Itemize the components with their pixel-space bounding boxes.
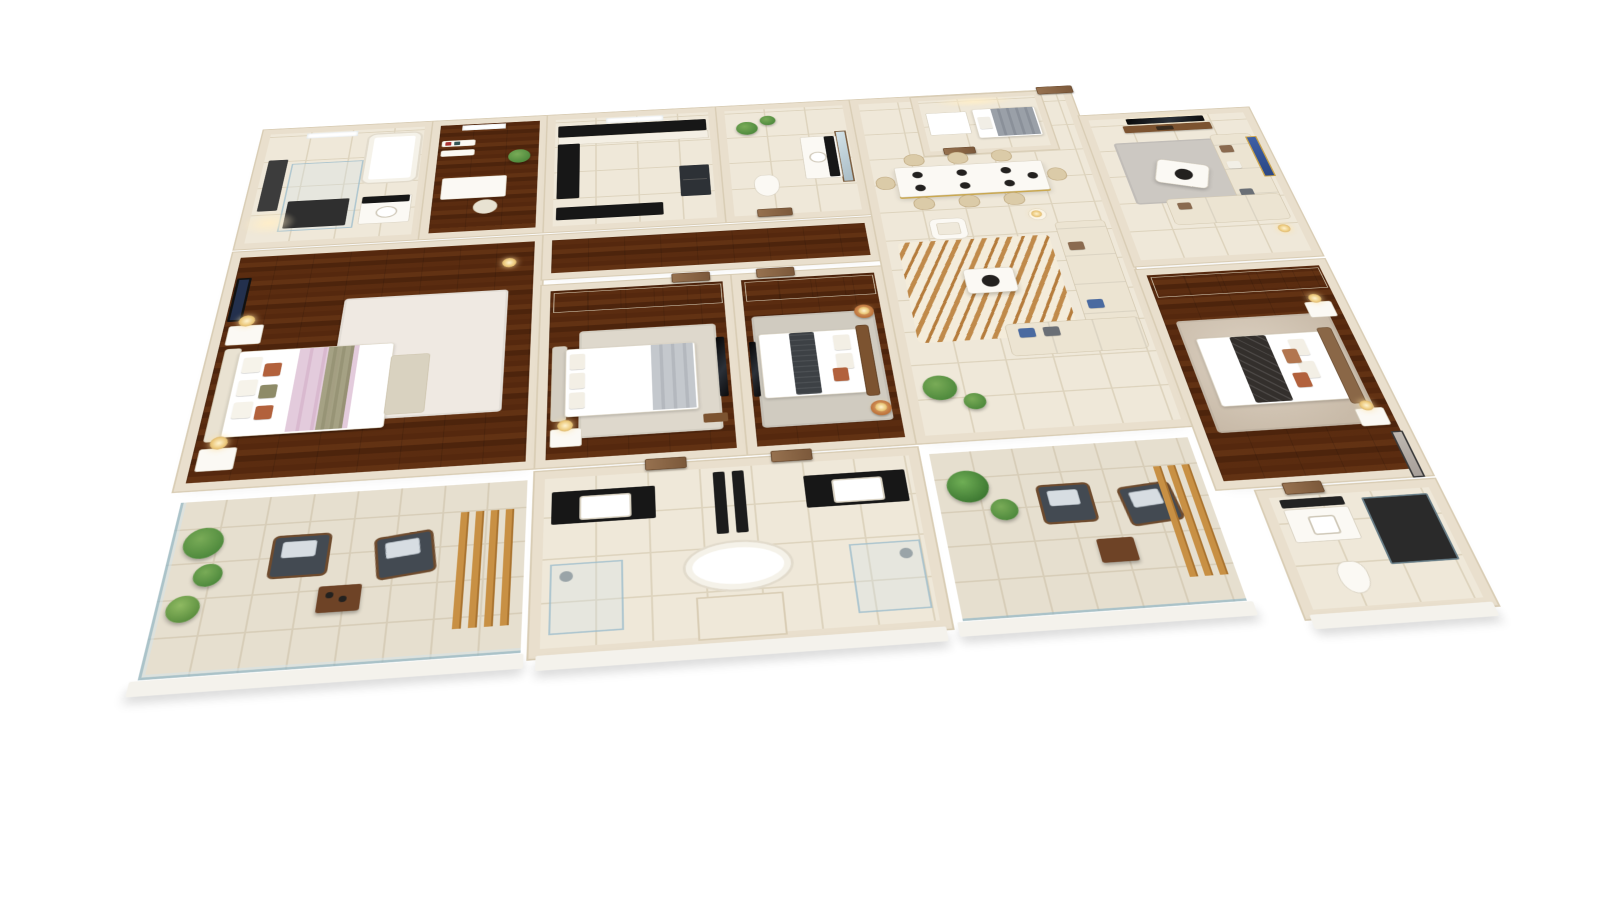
bathroom-door: [645, 456, 687, 470]
bathtub: [360, 131, 424, 185]
bathroom-door: [770, 448, 812, 462]
nightstand: [224, 324, 264, 345]
accent-pillow: [832, 367, 849, 381]
pillow: [832, 334, 851, 350]
chair-cushion: [385, 537, 421, 559]
side-table: [315, 584, 362, 614]
bed: [564, 342, 699, 418]
pillow: [241, 357, 263, 374]
gray-art: [1390, 430, 1425, 477]
vanity: [800, 135, 844, 179]
ensuite-bathroom: [1269, 487, 1484, 609]
potted-plant: [190, 563, 224, 588]
gray-pillow: [1042, 326, 1061, 336]
nightstand: [194, 447, 238, 472]
place-setting: [915, 184, 927, 191]
toilet: [1333, 560, 1377, 594]
single-bed: [971, 106, 1044, 138]
dining-chair: [957, 194, 981, 208]
potted-plant: [508, 149, 531, 164]
toilet: [753, 174, 781, 197]
utility-room: [918, 95, 1051, 151]
pillow: [569, 373, 585, 390]
powder-room-door: [757, 207, 793, 217]
dining-chair: [912, 197, 936, 211]
glass-shower: [277, 160, 364, 232]
apartment-3d-floor-plan: [99, 73, 1527, 745]
dining-chair: [902, 154, 925, 167]
sliding-wardrobe: [1150, 267, 1328, 297]
dark-shower: [1361, 493, 1460, 564]
entrance-main-door: [1035, 85, 1073, 94]
potted-plant: [179, 527, 226, 561]
coffee-table: [962, 267, 1019, 294]
shower-head: [899, 547, 914, 558]
blue-pillow: [1018, 328, 1037, 338]
pillow: [570, 354, 585, 370]
side-table: [1096, 537, 1140, 563]
accent-pillow: [1067, 241, 1085, 250]
nightstand: [1304, 301, 1339, 318]
shower-tray: [282, 198, 350, 228]
floor-plant: [920, 375, 959, 402]
hallway: [551, 223, 870, 273]
pillow: [236, 379, 259, 396]
vanity: [1283, 506, 1363, 544]
armchair-cushion: [936, 222, 962, 235]
basin: [375, 206, 398, 219]
floor-plant: [962, 392, 988, 410]
basin: [579, 493, 631, 520]
decor-tray: [1174, 168, 1193, 181]
desk: [440, 175, 507, 200]
pillow: [977, 117, 993, 130]
desk-chair: [472, 199, 498, 215]
divider-panel: [713, 472, 730, 535]
shower-head: [559, 571, 573, 583]
quilted-runner: [1229, 335, 1293, 403]
powder-room: [724, 105, 862, 216]
place-setting: [1004, 180, 1016, 187]
basin: [1307, 515, 1342, 536]
vanity-counter-right: [803, 469, 910, 508]
potted-plant: [759, 115, 776, 125]
books: [445, 142, 451, 146]
wall-shelf: [441, 139, 475, 147]
skylight: [462, 123, 506, 130]
pillow: [231, 401, 254, 419]
place-setting: [1000, 167, 1012, 174]
wardrobe: [744, 275, 876, 302]
kitchen: [553, 112, 717, 226]
dining-chair: [1002, 192, 1027, 205]
cup: [325, 592, 334, 599]
dining-chair: [989, 149, 1013, 162]
peninsula-counter: [556, 202, 664, 220]
bedroom-3: [741, 273, 905, 447]
divider-panel: [732, 470, 749, 532]
place-setting: [956, 169, 968, 176]
console-niche: [1156, 125, 1175, 130]
place-setting: [959, 182, 971, 189]
master-bathroom: [244, 127, 425, 244]
bedroom-2-door: [671, 271, 710, 282]
pillow: [1226, 161, 1242, 169]
armchair: [928, 217, 970, 240]
accent-pillow: [262, 363, 282, 377]
basin: [808, 151, 827, 163]
ensuite-door: [1281, 480, 1325, 494]
living-room: [1088, 112, 1311, 260]
vanity: [357, 194, 412, 225]
tv-console: [703, 412, 728, 422]
potted-plant: [735, 121, 758, 135]
balcony-1: [138, 480, 528, 680]
table-lamp: [1276, 224, 1292, 233]
accent-pillow: [253, 405, 274, 420]
accent-pillow: [258, 384, 278, 399]
potted-plant: [162, 595, 202, 624]
chair-cushion: [1046, 489, 1081, 506]
glass-shower: [849, 539, 933, 613]
bed: [758, 329, 868, 399]
wardrobe: [553, 284, 723, 313]
master-bedroom: [186, 241, 535, 483]
charcoal-runner: [789, 332, 823, 395]
wicker-chair: [266, 532, 333, 579]
cup: [338, 596, 347, 603]
chair-cushion: [280, 540, 317, 559]
vanity-counter-left: [551, 486, 656, 525]
floor-plan-stage: [0, 0, 1600, 900]
gray-throw: [651, 343, 697, 411]
accent-pillow: [1177, 202, 1193, 209]
kitchen-counter-left: [556, 144, 579, 200]
accent-pillow: [1219, 145, 1235, 153]
potted-plant: [988, 498, 1021, 521]
shower-tray: [925, 111, 972, 135]
place-setting: [912, 172, 924, 179]
bedroom-3-door: [756, 267, 795, 278]
shower-nook: [696, 592, 788, 641]
sofa-chaise: [1165, 193, 1292, 225]
blue-pillow: [1086, 299, 1105, 309]
dining-chair: [875, 176, 897, 190]
bedroom-2: [546, 281, 737, 460]
potted-plant: [944, 469, 993, 503]
basin: [831, 476, 886, 503]
dining-chair: [1045, 167, 1068, 181]
sofa-chaise: [1004, 316, 1150, 356]
books: [454, 142, 460, 146]
glass-shower: [548, 560, 624, 636]
balcony-2: [929, 437, 1247, 621]
shared-bathroom: [540, 455, 940, 649]
master-bed: [220, 343, 395, 438]
wicker-chair: [1035, 482, 1101, 525]
timber-slat-screen: [452, 509, 519, 630]
wicker-chair: [374, 528, 437, 581]
skylight: [306, 131, 358, 139]
vanity-counter: [362, 194, 411, 203]
pillow: [569, 392, 585, 409]
freestanding-oval-bathtub: [682, 536, 797, 595]
refrigerator: [679, 164, 711, 196]
gray-blanket: [990, 107, 1041, 136]
dressing-area: [428, 121, 540, 234]
fridge-handle: [683, 178, 707, 180]
bed-bench: [383, 353, 430, 415]
chair-cushion: [1128, 488, 1165, 508]
wall-shelf: [440, 149, 475, 157]
place-setting: [1027, 172, 1039, 179]
floor-lamp: [502, 258, 517, 268]
decor-bowl: [980, 274, 1001, 287]
